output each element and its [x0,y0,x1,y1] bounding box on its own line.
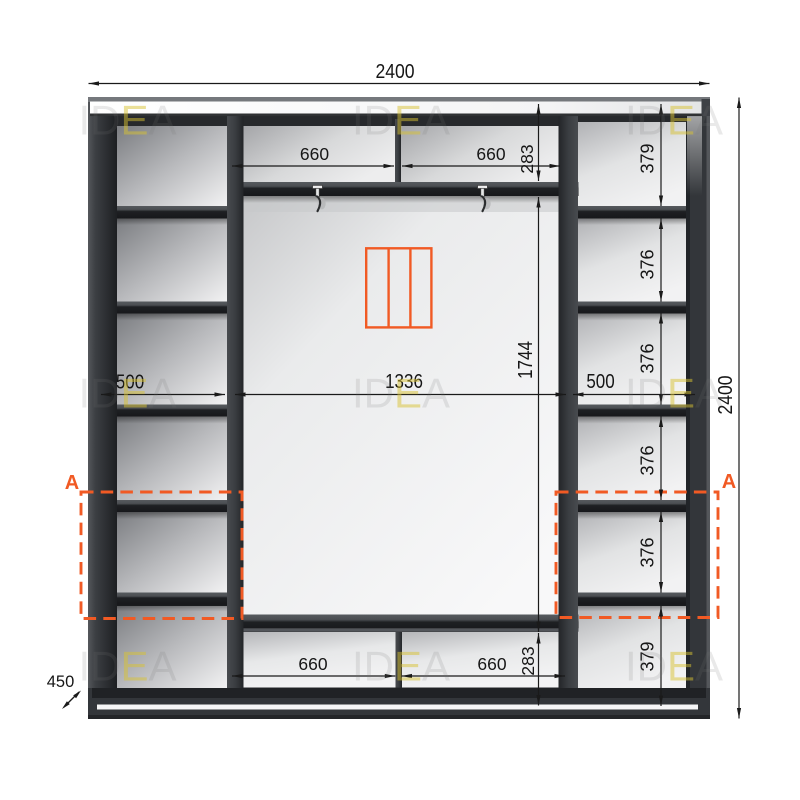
svg-text:283: 283 [518,646,538,675]
svg-text:660: 660 [300,144,329,164]
svg-text:660: 660 [298,654,327,674]
svg-text:376: 376 [637,445,657,475]
svg-text:IDEA: IDEA [625,643,723,690]
svg-text:IDEA: IDEA [78,97,176,144]
svg-text:IDEA: IDEA [625,97,723,144]
svg-text:IDEA: IDEA [625,370,723,417]
svg-text:500: 500 [586,370,614,393]
svg-text:379: 379 [637,143,657,173]
svg-text:A: A [65,472,79,494]
svg-text:1744: 1744 [513,341,536,379]
svg-text:660: 660 [477,654,506,674]
svg-text:IDEA: IDEA [352,370,450,417]
svg-text:376: 376 [637,537,657,567]
svg-text:A: A [722,471,736,493]
svg-text:2400: 2400 [375,60,414,82]
svg-text:IDEA: IDEA [352,643,450,690]
svg-text:376: 376 [637,249,657,279]
svg-text:283: 283 [517,144,537,173]
svg-text:IDEA: IDEA [78,643,176,690]
svg-text:660: 660 [476,144,505,164]
svg-text:450: 450 [47,673,75,691]
svg-text:IDEA: IDEA [352,97,450,144]
svg-text:IDEA: IDEA [78,370,176,417]
